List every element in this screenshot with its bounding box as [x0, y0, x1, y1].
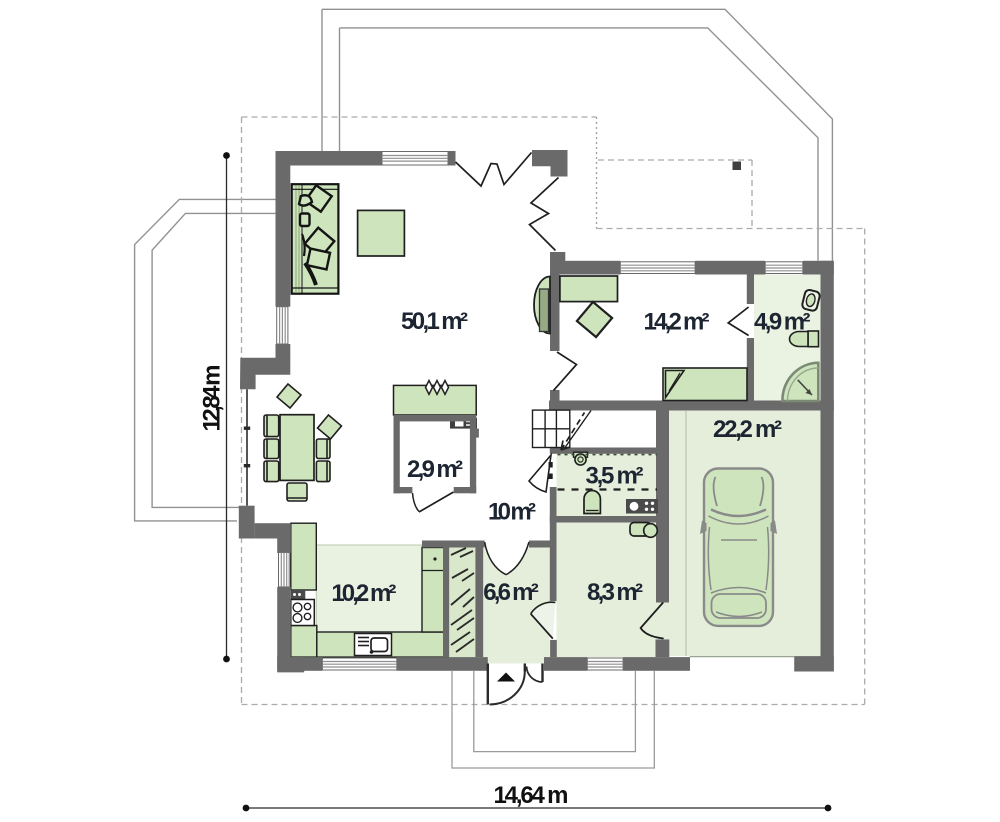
- svg-text:22,2 m²: 22,2 m²: [713, 416, 782, 443]
- svg-text:10 m²: 10 m²: [488, 499, 536, 526]
- svg-text:3,5 m²: 3,5 m²: [586, 463, 644, 490]
- svg-text:50,1 m²: 50,1 m²: [401, 308, 468, 335]
- svg-text:6,6 m²: 6,6 m²: [483, 579, 539, 606]
- svg-text:10,2 m²: 10,2 m²: [331, 580, 396, 607]
- svg-text:14,64 m: 14,64 m: [494, 782, 569, 809]
- svg-text:12,84 m: 12,84 m: [199, 365, 226, 432]
- svg-text:2,9 m²: 2,9 m²: [407, 456, 463, 483]
- svg-text:4,9 m²: 4,9 m²: [754, 309, 811, 336]
- svg-text:8,3 m²: 8,3 m²: [587, 579, 643, 606]
- svg-text:14,2 m²: 14,2 m²: [644, 309, 710, 336]
